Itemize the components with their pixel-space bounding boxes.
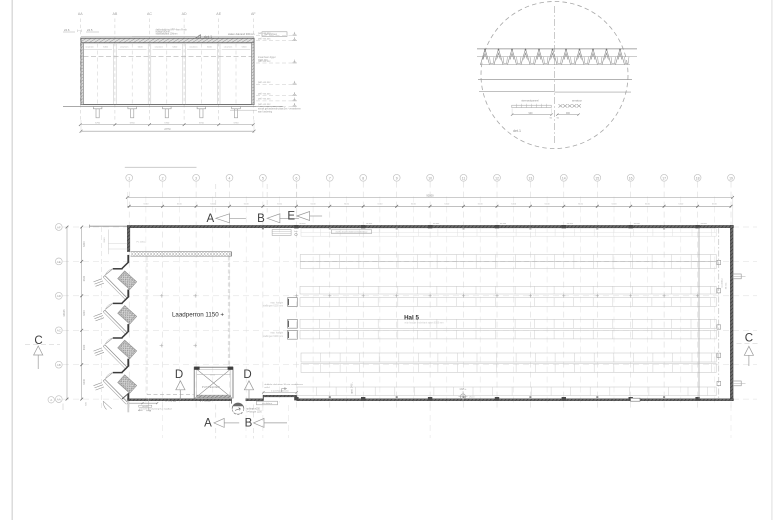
svg-text:4: 4 <box>229 176 231 180</box>
svg-text:34645: 34645 <box>62 309 66 317</box>
svg-text:stramien: stramien <box>85 46 94 49</box>
svg-text:13: 13 <box>529 176 533 180</box>
svg-text:peil +xx.xxx: peil +xx.xxx <box>258 98 271 101</box>
svg-text:15: 15 <box>595 176 599 180</box>
svg-text:5750: 5750 <box>95 122 101 124</box>
svg-text:1: 1 <box>128 176 130 180</box>
svg-text:peil +xx.xxx: peil +xx.xxx <box>258 32 271 35</box>
svg-text:5100: 5100 <box>311 204 317 206</box>
svg-text:vluchtdeur: vluchtdeur <box>262 402 272 405</box>
svg-text:5400: 5400 <box>207 47 213 49</box>
svg-text:D: D <box>175 369 183 381</box>
svg-text:5100: 5100 <box>612 204 618 206</box>
svg-text:5750: 5750 <box>164 122 170 124</box>
svg-text:xx.xxx: xx.xxx <box>701 223 708 225</box>
svg-text:5100: 5100 <box>411 204 417 206</box>
svg-text:max. hoogte: max. hoogte <box>270 302 283 305</box>
svg-text:AB: AB <box>113 12 118 16</box>
svg-text:peil +xx.xxx: peil +xx.xxx <box>258 92 271 95</box>
svg-text:7: 7 <box>329 176 331 180</box>
svg-text:18: 18 <box>696 176 700 180</box>
svg-text:Laadperron 1150 +: Laadperron 1150 + <box>172 311 224 318</box>
svg-text:16: 16 <box>629 176 633 180</box>
svg-text:spiltrap ø150: spiltrap ø150 <box>247 407 261 410</box>
svg-text:19: 19 <box>729 176 733 180</box>
svg-text:5100: 5100 <box>678 204 684 206</box>
svg-text:stramien: stramien <box>120 46 129 49</box>
svg-text:steenwolpaneel: steenwolpaneel <box>521 99 539 102</box>
svg-text:5100: 5100 <box>578 204 584 206</box>
svg-text:5100: 5100 <box>444 204 450 206</box>
svg-text:5100: 5100 <box>344 204 350 206</box>
svg-text:3: 3 <box>195 176 197 180</box>
svg-text:6300: 6300 <box>83 344 86 350</box>
svg-text:xx.xxx: xx.xxx <box>366 223 373 225</box>
svg-text:AE: AE <box>57 260 61 264</box>
svg-text:5750: 5750 <box>130 122 136 124</box>
svg-text:peil +xx.xxx: peil +xx.xxx <box>258 103 271 106</box>
svg-text:stalen dakrand 300mm: stalen dakrand 300mm <box>228 32 254 36</box>
svg-text:stramien: stramien <box>189 46 198 49</box>
svg-text:xx.xxx: xx.xxx <box>567 223 574 225</box>
svg-text:5100: 5100 <box>277 204 283 206</box>
svg-text:28750: 28750 <box>164 129 171 131</box>
svg-text:xx.xxx: xx.xxx <box>299 223 306 225</box>
svg-text:Ld. xxx: Ld. xxx <box>204 401 210 403</box>
svg-text:xx.xxx: xx.xxx <box>500 223 507 225</box>
svg-text:D: D <box>243 369 251 381</box>
svg-text:C: C <box>745 333 753 345</box>
svg-text:vrije hoogte onderkant spant 8: vrije hoogte onderkant spant 8350 mm <box>404 322 443 325</box>
svg-text:AF: AF <box>251 12 256 16</box>
svg-text:4650: 4650 <box>210 374 216 376</box>
svg-text:E: E <box>287 210 295 222</box>
svg-text:5400: 5400 <box>138 47 144 49</box>
svg-text:xx.xxx: xx.xxx <box>433 223 440 225</box>
svg-text:afvoer: afvoer <box>469 397 475 399</box>
svg-text:6300: 6300 <box>83 275 86 281</box>
svg-text:stellingen 6200 mm: stellingen 6200 mm <box>263 305 283 308</box>
svg-text:AA: AA <box>78 12 83 16</box>
svg-text:staaldakplaat 106mm: staaldakplaat 106mm <box>156 33 178 36</box>
svg-text:24.5: 24.5 <box>87 28 93 32</box>
svg-text:GS5 +: GS5 + <box>460 388 467 391</box>
svg-text:opst. 345 L: opst. 345 L <box>351 381 354 393</box>
svg-text:AF: AF <box>57 225 61 229</box>
svg-text:5750: 5750 <box>199 122 205 124</box>
svg-text:stellingen 6200 mm: stellingen 6200 mm <box>263 335 283 338</box>
svg-text:nooddeur: nooddeur <box>721 278 724 288</box>
svg-text:AB: AB <box>57 363 61 367</box>
svg-text:6: 6 <box>295 176 297 180</box>
svg-text:9540: 9540 <box>104 237 106 243</box>
svg-text:AD: AD <box>182 12 187 16</box>
svg-text:5400: 5400 <box>242 47 248 49</box>
svg-text:AC: AC <box>147 12 152 16</box>
svg-text:peil +xx.xxx: peil +xx.xxx <box>258 37 271 40</box>
svg-text:6300: 6300 <box>83 310 86 316</box>
svg-text:5100: 5100 <box>210 204 216 206</box>
svg-text:5100: 5100 <box>377 204 383 206</box>
svg-text:5400: 5400 <box>172 47 178 49</box>
svg-text:5100: 5100 <box>244 204 250 206</box>
svg-text:HEB 300: HEB 300 <box>258 59 268 62</box>
svg-text:4 overheaddeuren: 4 overheaddeuren <box>271 390 290 393</box>
svg-text:24.6: 24.6 <box>64 28 70 32</box>
svg-text:h=hoogte 1150: h=hoogte 1150 <box>247 410 263 413</box>
svg-text:aan fundering: aan fundering <box>258 110 273 113</box>
svg-text:12: 12 <box>495 176 499 180</box>
svg-text:5: 5 <box>262 176 264 180</box>
svg-text:9: 9 <box>396 176 398 180</box>
svg-text:overh. deuren elektrisch bedie: overh. deuren elektrisch bedienbaar <box>336 231 368 234</box>
svg-text:5400: 5400 <box>103 47 109 49</box>
svg-text:5100: 5100 <box>645 204 651 206</box>
svg-text:peil +xx.xxx: peil +xx.xxx <box>258 81 271 84</box>
svg-text:AE: AE <box>216 12 221 16</box>
svg-text:B: B <box>257 213 265 225</box>
svg-text:5100: 5100 <box>511 204 517 206</box>
svg-text:900: 900 <box>529 112 534 115</box>
svg-text:stramien: stramien <box>224 46 233 49</box>
svg-text:5100: 5100 <box>478 204 484 206</box>
svg-text:30 min: 30 min <box>726 282 728 289</box>
svg-text:det.1: det.1 <box>513 129 521 133</box>
svg-text:8: 8 <box>362 176 364 180</box>
svg-text:max. hoogte: max. hoogte <box>270 332 283 335</box>
svg-text:armatuur: armatuur <box>572 99 582 102</box>
svg-text:6300: 6300 <box>83 379 86 385</box>
svg-text:5100: 5100 <box>712 204 718 206</box>
svg-text:2: 2 <box>162 176 164 180</box>
svg-text:11: 11 <box>462 176 466 180</box>
svg-text:10: 10 <box>428 176 432 180</box>
svg-text:stramien: stramien <box>155 46 164 49</box>
svg-text:900: 900 <box>566 112 571 115</box>
svg-text:dubbele vluchtdeur 30 min. noo: dubbele vluchtdeur 30 min. nooddeuren <box>264 383 303 386</box>
svg-text:PUTKELDER: PUTKELDER <box>202 385 221 389</box>
svg-text:A: A <box>204 417 212 429</box>
svg-text:AA: AA <box>57 398 61 402</box>
svg-text:5750: 5750 <box>234 122 240 124</box>
svg-text:Hal 5: Hal 5 <box>404 314 419 321</box>
svg-text:C: C <box>34 335 42 347</box>
svg-text:14: 14 <box>562 176 566 180</box>
svg-text:zelfsl.: zelfsl. <box>264 387 270 389</box>
svg-text:aanzicht borstwering th.v. laa: aanzicht borstwering th.v. laadkuil <box>139 407 172 410</box>
svg-text:A: A <box>206 213 214 225</box>
svg-text:A: A <box>50 398 52 402</box>
svg-text:17: 17 <box>662 176 666 180</box>
svg-text:(—): (—) <box>77 28 82 32</box>
svg-text:strook gefundeerde plaat 5m ¹: strook gefundeerde plaat 5m ¹ verankeren <box>258 107 301 110</box>
svg-text:xx.xxx: xx.xxx <box>634 223 641 225</box>
svg-text:PL 1150+: PL 1150+ <box>137 242 147 244</box>
svg-text:5100: 5100 <box>177 204 183 206</box>
svg-text:92000: 92000 <box>426 194 434 198</box>
svg-text:Ld. xxx: Ld. xxx <box>170 401 176 403</box>
svg-text:B: B <box>245 417 253 429</box>
svg-text:6300: 6300 <box>83 241 86 247</box>
svg-text:5100: 5100 <box>143 204 149 206</box>
svg-text:5100: 5100 <box>545 204 551 206</box>
